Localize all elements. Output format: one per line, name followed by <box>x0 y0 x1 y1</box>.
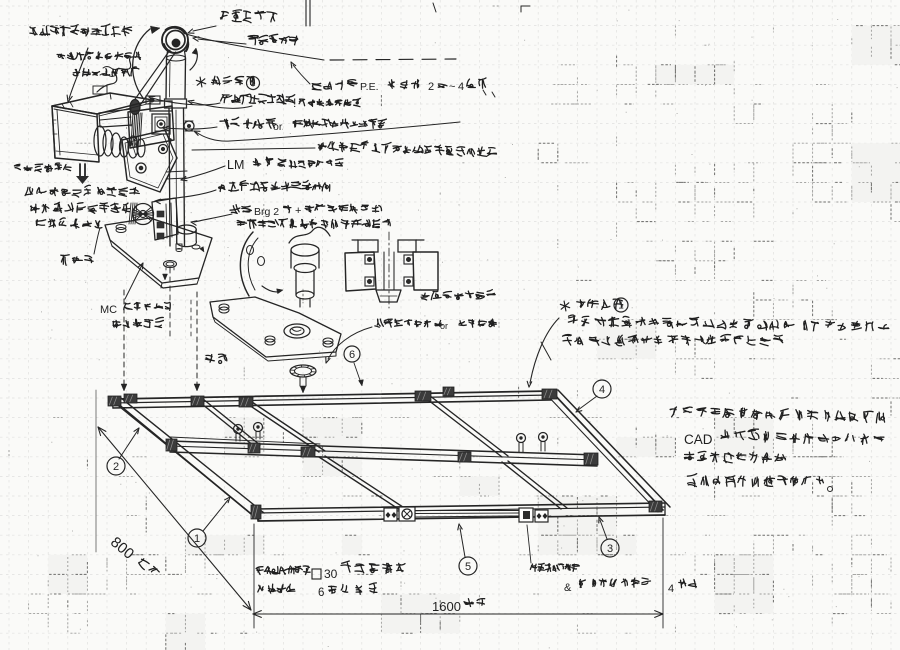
svg-text:6: 6 <box>349 349 355 361</box>
svg-text:~: ~ <box>449 81 455 93</box>
svg-text:LM: LM <box>227 158 244 172</box>
svg-text:or: or <box>440 321 448 331</box>
svg-text:4: 4 <box>458 81 464 93</box>
svg-text:!: ! <box>293 96 296 110</box>
svg-text:3: 3 <box>607 543 613 555</box>
svg-text:or: or <box>273 121 283 133</box>
svg-text:2: 2 <box>428 81 434 93</box>
svg-text:6: 6 <box>318 587 324 599</box>
svg-text:1: 1 <box>618 301 624 312</box>
svg-text:P.E.: P.E. <box>360 81 379 93</box>
svg-text:CAD: CAD <box>684 432 713 447</box>
svg-text:30: 30 <box>324 567 338 581</box>
svg-text:4: 4 <box>668 583 674 595</box>
svg-text:Brg 2: Brg 2 <box>254 206 279 218</box>
svg-text:1: 1 <box>194 533 200 545</box>
svg-text:4: 4 <box>599 384 605 396</box>
svg-text:+: + <box>295 205 301 217</box>
svg-text:2: 2 <box>250 78 255 88</box>
svg-text:MC: MC <box>100 304 117 316</box>
svg-text:1600: 1600 <box>432 599 461 614</box>
svg-text:5: 5 <box>465 561 471 573</box>
svg-text:&: & <box>564 582 572 594</box>
svg-text:2: 2 <box>113 461 119 473</box>
